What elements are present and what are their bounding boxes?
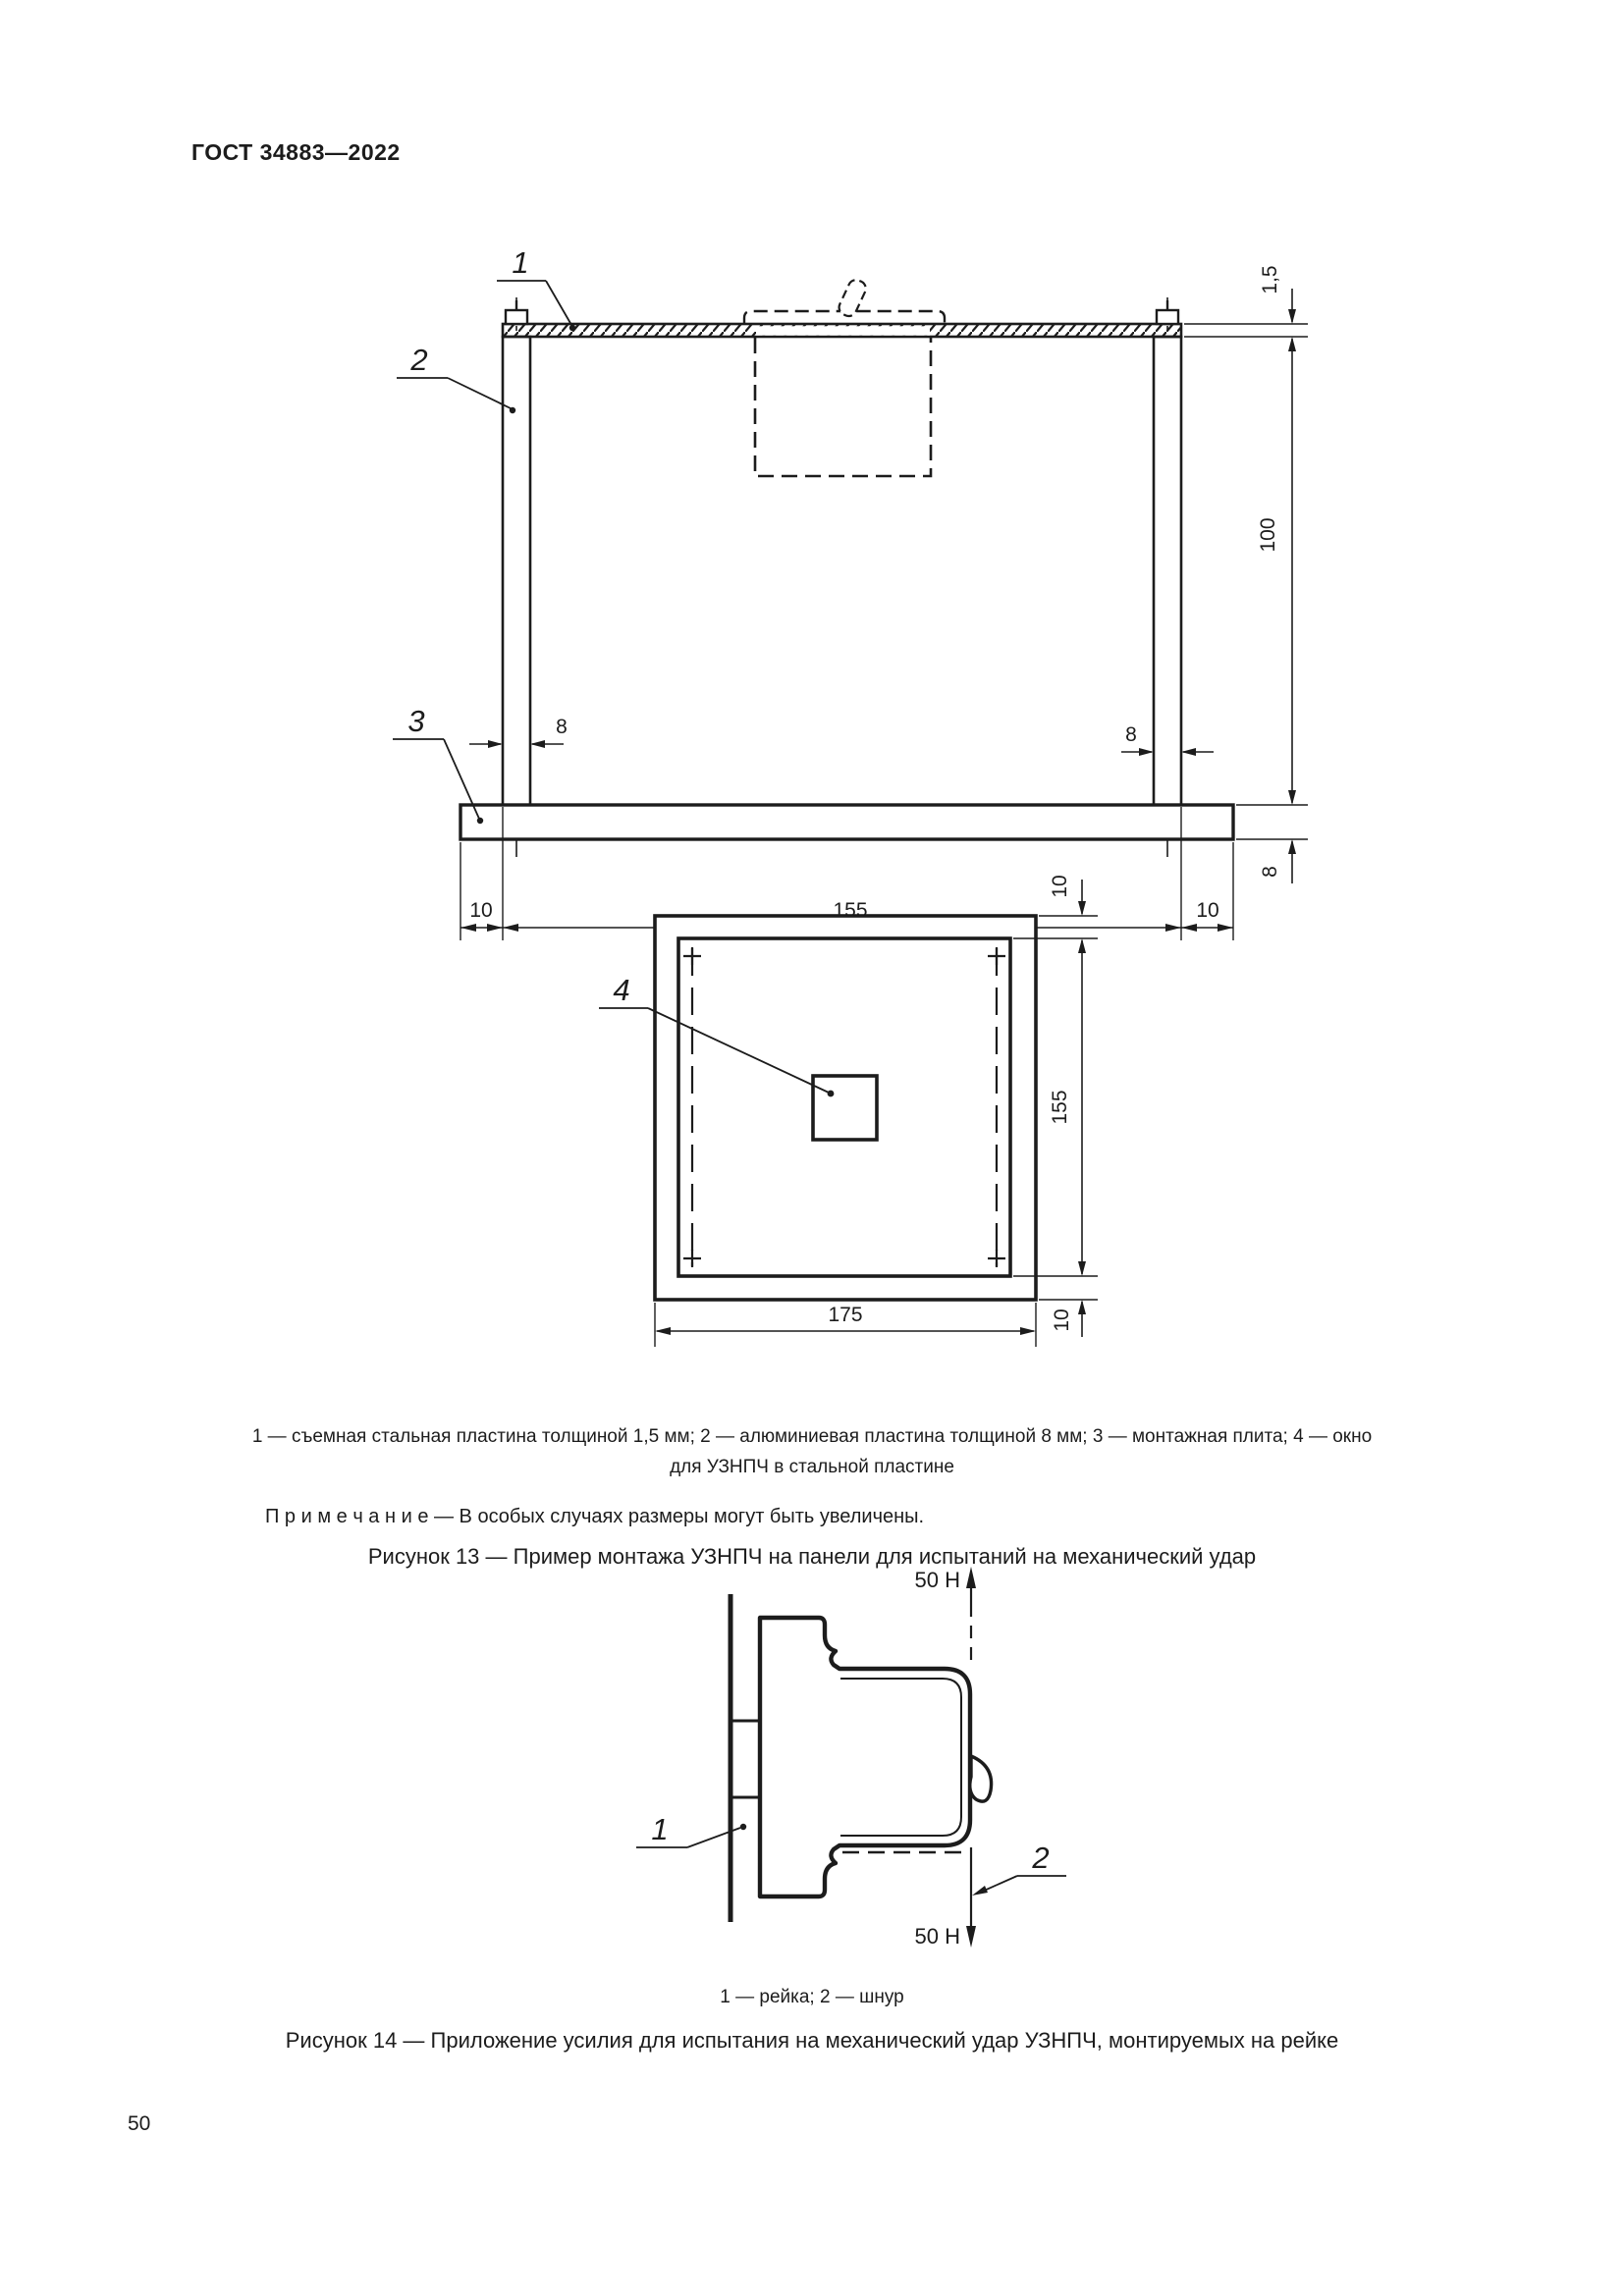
right-post bbox=[1154, 337, 1181, 806]
release-clip bbox=[970, 1756, 992, 1801]
label-rail: 1 bbox=[651, 1812, 668, 1846]
label-cord: 2 bbox=[1031, 1841, 1049, 1875]
figure13-side-view: 1,5 100 8 8 8 bbox=[373, 226, 1365, 972]
svg-text:10: 10 bbox=[1051, 1308, 1073, 1331]
figure14-drawing: 50 Н 50 Н 1 2 bbox=[609, 1551, 1090, 1968]
plate-window-gap bbox=[756, 326, 930, 335]
label-4: 4 bbox=[613, 973, 629, 1007]
svg-text:155: 155 bbox=[1049, 1090, 1071, 1124]
figure14-caption: Рисунок 14 — Приложение усилия для испыт… bbox=[139, 2028, 1485, 2054]
plan-dim-width: 175 bbox=[655, 1304, 1036, 1335]
page-title: ГОСТ 34883—2022 bbox=[191, 139, 401, 166]
figure13-legend: 1 — съемная стальная пластина толщиной 1… bbox=[139, 1421, 1485, 1482]
svg-text:1,5: 1,5 bbox=[1259, 265, 1281, 294]
svg-text:10: 10 bbox=[1196, 899, 1218, 922]
svg-text:8: 8 bbox=[1125, 723, 1137, 746]
mounting-plate bbox=[460, 805, 1233, 839]
dim-height-100: 100 bbox=[1257, 337, 1296, 805]
svg-text:175: 175 bbox=[828, 1304, 862, 1326]
figure14-legend: 1 — рейка; 2 — шнур bbox=[139, 1987, 1485, 2008]
page-number: 50 bbox=[128, 2112, 150, 2136]
figure13-plan-view: 4 10 155 10 bbox=[569, 864, 1139, 1364]
device-toggle bbox=[837, 278, 868, 319]
label-2: 2 bbox=[409, 343, 427, 377]
figure13-legend-line1: 1 — съемная стальная пластина толщиной 1… bbox=[139, 1421, 1485, 1452]
label-1: 1 bbox=[512, 245, 528, 280]
force-top-label: 50 Н bbox=[915, 1568, 960, 1592]
device-profile bbox=[760, 1618, 970, 1896]
label-3: 3 bbox=[407, 704, 424, 738]
force-bottom-label: 50 Н bbox=[915, 1924, 960, 1949]
svg-text:10: 10 bbox=[1049, 875, 1071, 897]
plan-window bbox=[813, 1076, 877, 1140]
steel-plate bbox=[503, 324, 1181, 337]
figure13-legend-line2: для УЗНПЧ в стальной пластине bbox=[139, 1452, 1485, 1482]
device-body bbox=[755, 338, 931, 476]
device-outline-dashed bbox=[744, 278, 945, 476]
dim-base-thickness: 8 bbox=[1259, 839, 1296, 883]
aluminium-posts bbox=[503, 337, 1181, 806]
dim-plate-thickness: 1,5 bbox=[1259, 265, 1296, 324]
figure13-note: П р и м е ч а н и е — В особых случаях р… bbox=[265, 1506, 1443, 1528]
post-centerlines bbox=[516, 297, 1167, 860]
svg-text:8: 8 bbox=[1259, 866, 1281, 878]
svg-text:8: 8 bbox=[556, 716, 568, 738]
document-page: ГОСТ 34883—2022 bbox=[0, 0, 1624, 2296]
din-rail bbox=[731, 1594, 760, 1922]
svg-text:10: 10 bbox=[469, 899, 492, 922]
svg-text:100: 100 bbox=[1257, 517, 1279, 552]
plan-dim-right: 10 155 10 bbox=[1049, 875, 1086, 1337]
